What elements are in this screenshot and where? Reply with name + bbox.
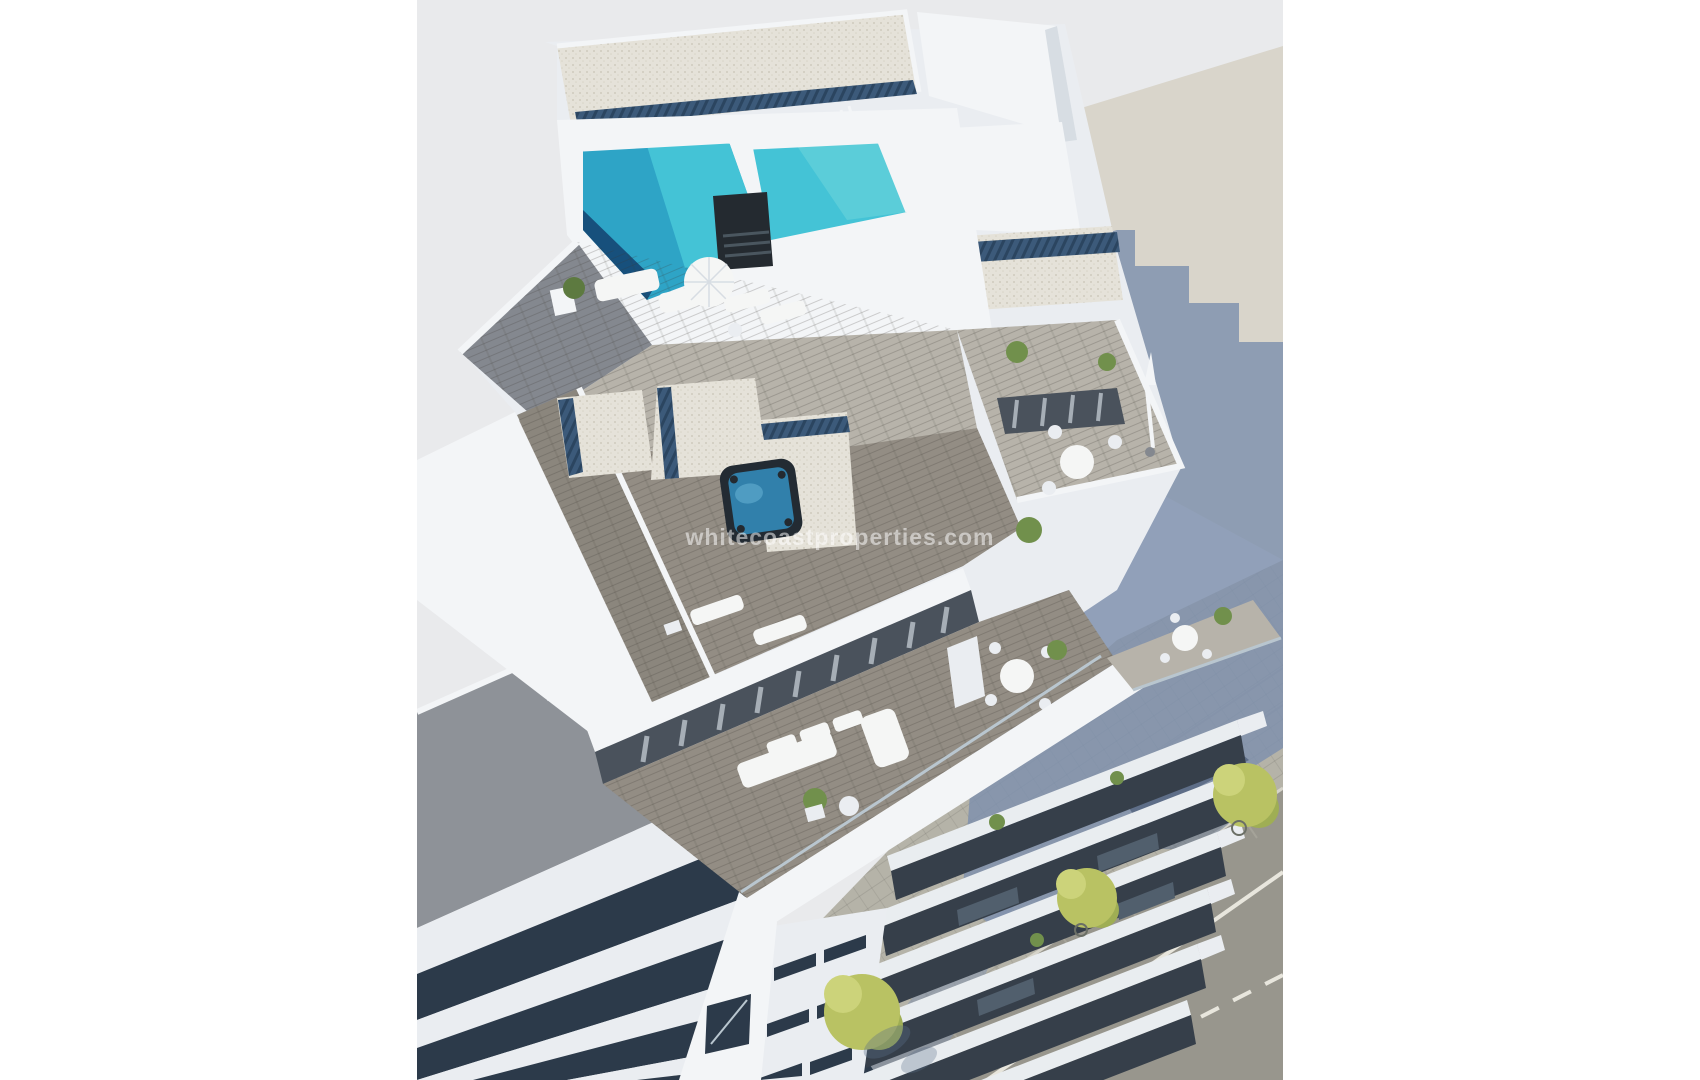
- potted-plant: [1098, 353, 1116, 371]
- planter-cypress: [563, 277, 585, 299]
- dining-table: [1000, 659, 1034, 693]
- canvas-margin-right: [1283, 0, 1700, 1080]
- dining-chair: [1042, 481, 1056, 495]
- potted-plant: [1214, 607, 1232, 625]
- dining-chair: [1103, 489, 1117, 503]
- dining-chair: [1108, 435, 1122, 449]
- dining-chair: [1202, 649, 1212, 659]
- render-image: whitecoastproperties.com: [417, 0, 1283, 1080]
- dining-chair: [985, 694, 997, 706]
- potted-plant: [1047, 640, 1067, 660]
- balcony-plant: [1110, 771, 1124, 785]
- potted-plant: [1006, 341, 1028, 363]
- canvas-margin-left: [0, 0, 417, 1080]
- render-scene: whitecoastproperties.com: [417, 0, 1283, 1080]
- balcony-plant: [1030, 933, 1044, 947]
- potted-plant: [1016, 517, 1042, 543]
- dining-chair: [1160, 653, 1170, 663]
- balcony-plant: [989, 814, 1005, 830]
- dining-chair: [989, 642, 1001, 654]
- coffee-table: [839, 796, 859, 816]
- dining-chair: [1048, 425, 1062, 439]
- watermark: whitecoastproperties.com: [684, 524, 994, 550]
- dining-chair: [1170, 613, 1180, 623]
- parasol-base: [1145, 447, 1155, 457]
- dining-table: [1172, 625, 1198, 651]
- screenshot-canvas: whitecoastproperties.com: [0, 0, 1700, 1080]
- dining-table: [1060, 445, 1094, 479]
- side-table: [728, 323, 742, 337]
